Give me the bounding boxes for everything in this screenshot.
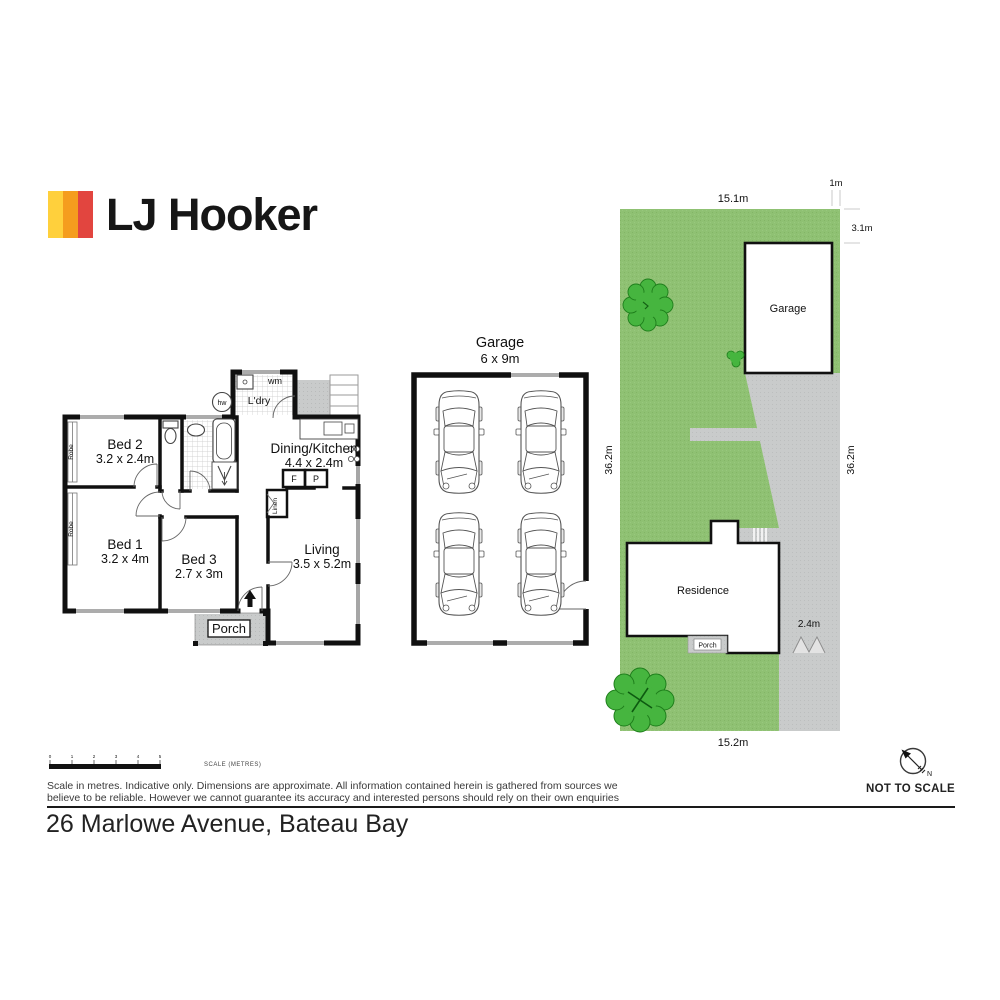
- room-name: Bed 2: [107, 437, 142, 452]
- tree-icon: [623, 279, 673, 331]
- svg-text:2: 2: [93, 754, 96, 759]
- svg-text:0: 0: [49, 754, 52, 759]
- dim-setback-right: 1m: [829, 178, 842, 189]
- logo-stripe-orange: [63, 191, 78, 238]
- disclaimer-line1: Scale in metres. Indicative only. Dimens…: [47, 780, 618, 792]
- property-address: 26 Marlowe Avenue, Bateau Bay: [46, 810, 408, 839]
- room-name: Bed 3: [181, 552, 216, 567]
- garage-dims: 6 x 9m: [480, 351, 519, 366]
- porch-post: [193, 641, 198, 646]
- site-porch: Porch: [688, 636, 727, 653]
- compass-icon: N: [893, 742, 943, 784]
- room-dims: 4.4 x 2.4m: [285, 456, 343, 470]
- fridge-label: F: [291, 474, 297, 484]
- dim-setback-top: 3.1m: [851, 223, 872, 234]
- svg-text:1: 1: [71, 754, 74, 759]
- room-dims: 3.2 x 2.4m: [96, 452, 154, 466]
- svg-text:4: 4: [137, 754, 140, 759]
- svg-text:3: 3: [115, 754, 118, 759]
- porch-label: Porch: [212, 621, 246, 636]
- site-plan: Garage Residence Porch: [595, 175, 885, 755]
- svg-text:N: N: [927, 771, 932, 778]
- svg-text:hw: hw: [218, 400, 228, 407]
- brand-name: LJ Hooker: [106, 191, 317, 238]
- garage-floorplan: Garage 6 x 9m: [405, 333, 595, 651]
- entry-arrow-icon: [244, 590, 256, 607]
- room-name: Living: [304, 542, 339, 557]
- hot-water-icon: hw: [213, 393, 232, 412]
- wm-label: wm: [267, 376, 282, 386]
- floorplan-page: LJ Hooker Porch: [0, 0, 1000, 1000]
- car-icon: [434, 513, 484, 616]
- dim-top: 15.1m: [718, 193, 749, 205]
- robe-label: Robe: [68, 521, 75, 537]
- site-residence-label: Residence: [677, 585, 729, 597]
- room-name: Dining/Kitchen: [270, 441, 357, 456]
- room-name: Bed 1: [107, 537, 142, 552]
- basin-icon: [188, 424, 205, 436]
- rear-landing: [295, 380, 330, 417]
- toilet-icon: [163, 421, 178, 428]
- stairs-icon: [330, 375, 358, 417]
- garage-title: Garage: [476, 335, 524, 351]
- car-icon: [516, 513, 566, 616]
- scale-caption: SCALE (METRES): [204, 762, 261, 768]
- scale-bar: 0 1 2 3 4 5: [46, 750, 186, 774]
- linen-label: Linen: [272, 498, 279, 514]
- room-dims: 3.5 x 5.2m: [293, 557, 351, 571]
- tree-icon: [606, 668, 674, 732]
- footer-divider: [47, 806, 955, 808]
- room-dims: 2.7 x 3m: [175, 567, 223, 581]
- path-steps: [738, 528, 779, 543]
- logo-stripe-red: [78, 191, 93, 238]
- laundry-tub-icon: [237, 375, 253, 389]
- svg-text:5: 5: [159, 754, 162, 759]
- dim-left: 36.2m: [603, 445, 615, 474]
- dim-bottom: 15.2m: [718, 737, 749, 749]
- lj-hooker-logo: LJ Hooker: [48, 191, 317, 238]
- robes: [68, 422, 77, 565]
- laundry-label: L'dry: [248, 395, 271, 407]
- dim-right: 36.2m: [845, 445, 857, 474]
- house-floorplan: Porch: [62, 366, 362, 648]
- car-icon: [516, 391, 566, 494]
- shower-icon: [212, 462, 237, 489]
- svg-text:Porch: Porch: [698, 643, 716, 650]
- dim-gate: 2.4m: [798, 619, 820, 630]
- sink-icon: [324, 422, 342, 435]
- car-icon: [434, 391, 484, 494]
- site-garage-label: Garage: [770, 303, 807, 315]
- not-to-scale-label: NOT TO SCALE: [866, 783, 955, 795]
- room-dims: 3.2 x 4m: [101, 552, 149, 566]
- garden-path: [690, 428, 763, 441]
- pantry-label: P: [313, 474, 319, 484]
- robe-label: Robe: [68, 444, 75, 460]
- logo-stripe-yellow: [48, 191, 63, 238]
- disclaimer-line2: believe to be reliable. However we canno…: [47, 792, 619, 804]
